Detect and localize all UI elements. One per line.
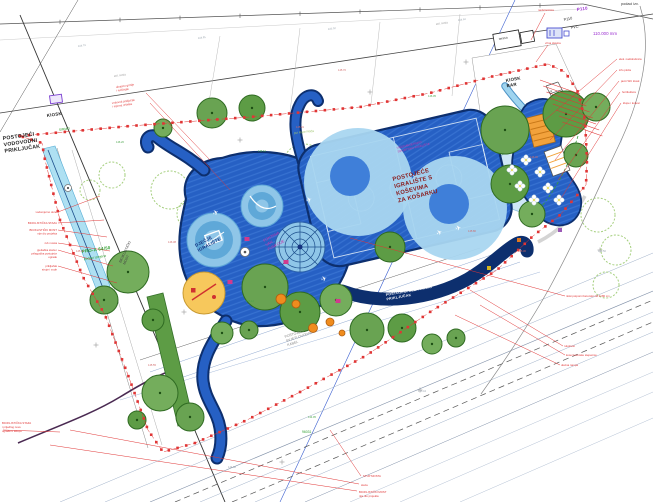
boundary-marker [586, 161, 589, 164]
boundary-marker [79, 269, 82, 272]
leader-line [455, 315, 560, 365]
tree-center-dot [389, 246, 391, 248]
boundary-marker [497, 267, 500, 270]
existing-tree-outline [151, 171, 189, 209]
boundary-marker [251, 416, 254, 419]
boundary-marker [234, 117, 237, 120]
boundary-marker [153, 123, 156, 126]
boundary-marker [322, 378, 325, 381]
boundary-marker [99, 127, 102, 130]
boundary-marker [552, 65, 555, 68]
boundary-marker [108, 324, 111, 327]
boundary-marker [288, 112, 291, 115]
furniture-marker [487, 266, 491, 270]
boundary-marker [359, 106, 362, 109]
boundary-marker [210, 434, 213, 437]
boundary-marker [267, 407, 270, 410]
boundary-marker [121, 358, 124, 361]
road-line [400, 392, 653, 502]
boundary-marker [124, 366, 127, 369]
boundary-marker [412, 95, 415, 98]
boundary-marker [551, 220, 554, 223]
spinner-rings-small [241, 185, 283, 227]
boundary-marker [135, 124, 138, 127]
boundary-marker [583, 116, 586, 119]
boundary-marker [52, 192, 55, 195]
boundary-marker [544, 63, 547, 66]
boundary-marker [584, 134, 587, 137]
tree-center-dot [251, 107, 253, 109]
elevation-number: 144.88 [228, 465, 236, 469]
boundary-marker [407, 326, 410, 329]
boundary-marker [585, 152, 588, 155]
label: ukrasno grmljei ružičnjak [116, 82, 136, 92]
boundary-marker [585, 179, 588, 182]
boundary-marker [439, 89, 442, 92]
label: niski potporni betonski zid h=80 cm [566, 294, 610, 298]
road-line [105, 272, 653, 502]
manhole-marker-1 [241, 248, 250, 257]
boundary-marker [362, 356, 365, 359]
tree-center-dot [401, 327, 403, 329]
label: STUP MOSTA [363, 474, 381, 478]
label: POSTOJEĆIVODOVODNIPRIKLJUČAK [2, 129, 40, 155]
boundary-marker [139, 409, 142, 412]
boundary-marker [130, 383, 133, 386]
boundary-marker [91, 292, 94, 295]
label: put Mare Pitića [294, 129, 315, 135]
boundary-marker [243, 116, 246, 119]
label: javni WC kiosk [620, 79, 640, 83]
boundary-marker [37, 133, 40, 136]
boundary-marker [65, 235, 68, 238]
furniture-marker [558, 228, 562, 232]
boundary-marker [126, 125, 129, 128]
boundary-marker [62, 227, 65, 230]
boundary-marker [194, 442, 197, 445]
survey-line [0, 4, 583, 24]
equipment-marker [284, 260, 289, 264]
label: ulazna rampa [561, 363, 578, 367]
tree-center-dot [595, 106, 597, 108]
boundary-marker [55, 131, 58, 134]
tree-center-dot [211, 112, 213, 114]
tree-center-dot [189, 416, 191, 418]
elevation-number: 145.70 [338, 68, 346, 72]
tree-center-dot [103, 299, 105, 301]
label: hortikultura [622, 90, 636, 94]
boundary-marker [582, 187, 585, 190]
boundary-marker [315, 382, 318, 385]
boundary-marker [491, 75, 494, 78]
boundary-marker [136, 400, 139, 403]
boundary-marker [386, 100, 389, 103]
boundary-marker [526, 67, 529, 70]
elevation-number: 146.38 [168, 240, 176, 244]
equipment-marker [228, 280, 233, 284]
boundary-marker [189, 120, 192, 123]
boundary-marker [261, 115, 264, 118]
boundary-marker [100, 308, 103, 311]
boundary-marker [75, 260, 78, 263]
elevation-number: 145.80 [468, 229, 476, 233]
label: vodomjerno okno [36, 210, 58, 214]
boundary-marker [384, 341, 387, 344]
elevation-number: 145.55 [148, 363, 156, 367]
boundary-marker [354, 360, 357, 363]
boundary-marker [395, 98, 398, 101]
label: pješačka staza iprilagodba postojećeogra… [31, 248, 57, 259]
boundary-marker [111, 333, 114, 336]
label: rub mosta [45, 241, 58, 245]
play-equipment-dot [339, 330, 345, 336]
boundary-marker [225, 117, 228, 120]
boundary-marker [235, 424, 238, 427]
boundary-marker [369, 351, 372, 354]
leader-line [531, 13, 545, 40]
boundary-marker [350, 106, 353, 109]
elevation-number: 146.00 [530, 155, 538, 159]
tree-center-dot [431, 343, 433, 345]
road-line [305, 352, 653, 502]
label: vrtna slavina [545, 41, 561, 45]
label: PVC [570, 24, 579, 30]
elevation-number: 145.44 [418, 389, 426, 393]
boundary-marker [90, 128, 93, 131]
elevation-number: 145.02 [328, 26, 337, 31]
boundary-marker [299, 391, 302, 394]
label: asf. cesta [436, 20, 449, 26]
label: rukohvat [564, 344, 575, 348]
tree-center-dot [509, 183, 511, 185]
boundary-marker [490, 272, 493, 275]
road-line [232, 322, 653, 502]
boundary-marker [544, 225, 547, 228]
play-equipment-dot [326, 318, 334, 326]
transformer-icon [547, 28, 569, 38]
boundary-marker [421, 316, 424, 319]
boundary-marker [535, 65, 538, 68]
label: BICIKLISTIČKI MOSTnije dio projekta [29, 227, 57, 236]
boundary-marker [275, 403, 278, 406]
boundary-marker [558, 214, 561, 217]
site-plan-screenshot: ✈✈✈✈✈ POSTOJEĆIVODOVODNIPRIKLJUČAKKIOSKK… [0, 0, 653, 502]
furniture-marker [517, 238, 521, 242]
boundary-marker [467, 287, 470, 290]
label: info ploča [619, 68, 631, 72]
boundary-marker [226, 427, 229, 430]
label: P110 [576, 5, 588, 12]
tree-center-dot [366, 329, 368, 331]
boundary-marker [437, 306, 440, 309]
boundary-marker [537, 231, 540, 234]
tree-center-dot [127, 271, 129, 273]
boundary-marker [105, 316, 108, 319]
boundary-marker [96, 300, 99, 303]
boundary-marker [146, 426, 149, 429]
boundary-marker [46, 132, 49, 135]
boundary-marker [368, 104, 371, 107]
compass-circle [183, 272, 225, 314]
boundary-marker [81, 129, 84, 132]
boundary-marker [504, 261, 507, 264]
boundary-marker [243, 420, 246, 423]
manhole-marker-2 [65, 185, 72, 192]
boundary-marker [198, 119, 201, 122]
leader-line [330, 430, 361, 476]
boundary-marker [160, 448, 163, 451]
tree-center-dot [162, 127, 164, 129]
label: BICIKLISTIČKA STAZA [28, 220, 57, 225]
boundary-marker [346, 365, 349, 368]
leader-line [480, 305, 565, 355]
tree-center-dot [299, 311, 301, 313]
boundary-marker [185, 444, 188, 447]
elevation-number: 146.05 [428, 94, 436, 98]
elevation-number: 144.50 [598, 249, 606, 253]
boundary-marker [127, 375, 130, 378]
boundary-marker [570, 201, 573, 204]
court-inner-circle-west [330, 156, 370, 196]
boundary-marker [82, 277, 85, 280]
boundary-marker [482, 77, 485, 80]
site-plan-svg: ✈✈✈✈✈ POSTOJEĆIVODOVODNIPRIKLJUČAKKIOSKK… [0, 0, 653, 502]
boundary-marker [404, 97, 407, 100]
boundary-marker [252, 115, 255, 118]
boundary-marker [444, 301, 447, 304]
tree-center-dot [264, 286, 266, 288]
boundary-marker [155, 441, 158, 444]
boundary-marker [42, 149, 45, 152]
play-equipment-dot [292, 300, 300, 308]
boundary-marker [297, 111, 300, 114]
boundary-marker [517, 69, 520, 72]
boundary-marker [447, 87, 450, 90]
boundary-marker [338, 369, 341, 372]
boundary-marker [307, 386, 310, 389]
label: podaci izv. [621, 2, 639, 6]
elevation-number: 146.62 [258, 149, 266, 153]
elevation-number: 146.12 [246, 299, 254, 303]
boundary-marker [474, 80, 477, 83]
elevation-number: 145.30 [518, 249, 526, 253]
boundary-marker [500, 73, 503, 76]
boundary-marker [564, 207, 567, 210]
label: P110 [563, 16, 572, 22]
label: vodovod priključaki mjerna rešetka [112, 98, 136, 109]
tree-center-dot [504, 129, 506, 131]
boundary-marker [46, 166, 49, 169]
label: BICIKLISTIČKI MOSTnije dio projekta [359, 489, 387, 498]
boundary-marker [452, 296, 455, 299]
tree-center-dot [136, 419, 138, 421]
tree-center-dot [159, 392, 161, 394]
boundary-marker [399, 331, 402, 334]
boundary-marker [143, 417, 146, 420]
boundary-marker [523, 242, 526, 245]
blob-arm-upper-left [146, 136, 204, 170]
boundary-marker [207, 119, 210, 122]
boundary-marker [392, 336, 395, 339]
survey-line [0, 0, 78, 132]
boundary-marker [72, 130, 75, 133]
boundary-marker [202, 438, 205, 441]
boundary-marker [270, 114, 273, 117]
label: klupe i koševi [623, 101, 640, 105]
boundary-marker [291, 395, 294, 398]
boundary-marker [429, 311, 432, 314]
boundary-marker [571, 82, 574, 85]
existing-tree-outline [99, 162, 125, 188]
boundary-marker [315, 110, 318, 113]
boundary-marker [180, 121, 183, 124]
elevation-number: 144.95 [308, 415, 316, 419]
boundary-marker [176, 447, 179, 450]
boundary-marker [414, 321, 417, 324]
boundary-marker [150, 433, 153, 436]
leader-line [470, 290, 563, 346]
boundary-marker [430, 91, 433, 94]
label: 110.000 mm [593, 31, 617, 36]
label: staza [361, 483, 368, 487]
elevation-number: 146.20 [116, 140, 124, 144]
boundary-marker [168, 449, 171, 452]
boundary-marker [508, 71, 511, 74]
boundary-marker [218, 431, 221, 434]
tree-center-dot [221, 332, 223, 334]
label: nadstrešnica [538, 8, 554, 12]
boundary-marker [216, 118, 219, 121]
survey-line [452, 14, 460, 96]
label: asf. cesta [114, 72, 127, 78]
boundary-marker [566, 75, 569, 78]
boundary-marker [324, 109, 327, 112]
boundary-marker [475, 282, 478, 285]
boundary-marker [43, 157, 46, 160]
boundary-marker [482, 277, 485, 280]
tree-center-dot [152, 319, 154, 321]
boundary-marker [54, 201, 57, 204]
boundary-marker [421, 93, 424, 96]
boundary-marker [576, 194, 579, 197]
boundary-marker [59, 219, 62, 222]
elevation-number: 144.63 [458, 17, 467, 22]
equipment-marker [336, 299, 341, 303]
road-line [460, 418, 653, 502]
boundary-marker [50, 184, 53, 187]
boundary-marker [330, 373, 333, 376]
boundary-marker [465, 82, 468, 85]
equipment-marker [245, 237, 250, 241]
boundary-marker [114, 341, 117, 344]
label: elek. nadstrešnica [619, 57, 642, 61]
elevation-number: 145.10 [76, 249, 84, 253]
tree-center-dot [248, 329, 250, 331]
kiosk-utility-icon [50, 94, 63, 104]
boundary-marker [48, 175, 51, 178]
play-equipment-dot [276, 294, 286, 304]
fountain-web [275, 222, 325, 272]
elevation-number: 144.81 [198, 35, 207, 40]
boundary-marker [377, 346, 380, 349]
boundary-marker [117, 350, 120, 353]
boundary-marker [108, 127, 111, 130]
boundary-marker [530, 236, 533, 239]
boundary-marker [162, 122, 165, 125]
boundary-marker [87, 285, 90, 288]
boundary-marker [585, 170, 588, 173]
elevation-number: 144.79 [78, 43, 87, 48]
boundary-marker [333, 108, 336, 111]
boundary-marker [279, 113, 282, 116]
label: priključakstruje i vode [42, 264, 58, 272]
boundary-marker [377, 102, 380, 105]
boundary-marker [459, 291, 462, 294]
boundary-marker [283, 399, 286, 402]
boundary-marker [306, 111, 309, 114]
label: kose betonske stepenice [566, 353, 597, 357]
boundary-marker [456, 84, 459, 87]
road-line [350, 372, 653, 502]
boundary-marker [560, 69, 563, 72]
label: 96031 [302, 430, 312, 434]
tree-center-dot [455, 337, 457, 339]
label: KIOSK [46, 111, 62, 118]
boundary-marker [510, 255, 513, 258]
boundary-marker [144, 124, 147, 127]
tree-center-dot [531, 213, 533, 215]
boundary-marker [342, 107, 345, 110]
boundary-marker [117, 126, 120, 129]
boundary-marker [259, 412, 262, 415]
boundary-marker [133, 392, 136, 395]
elevation-number: 145.91 [296, 125, 304, 129]
boundary-marker [585, 143, 588, 146]
